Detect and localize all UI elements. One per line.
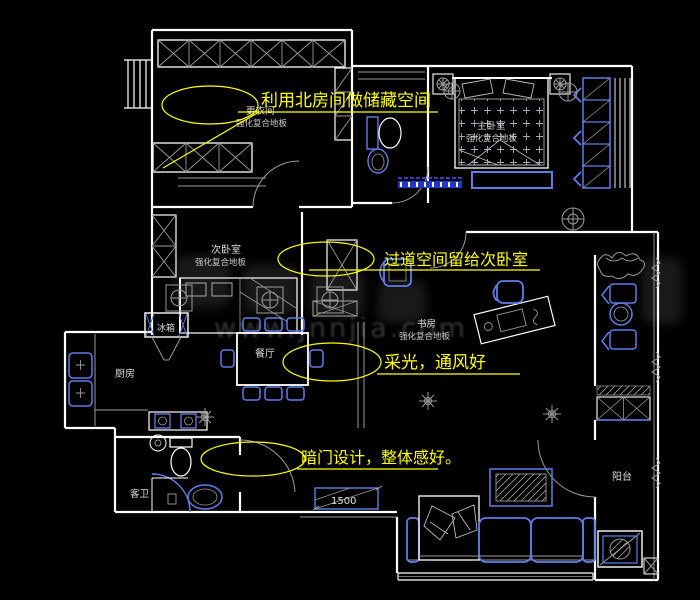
annotation-hidden-door-text: 暗门设计，整体感好。 bbox=[301, 448, 461, 467]
floorplan-drawing: www.jnnjia.com bbox=[0, 0, 700, 600]
study-chair bbox=[494, 281, 524, 303]
fridge-icon bbox=[145, 313, 188, 360]
sofa-pillows bbox=[424, 505, 477, 540]
bed-bench bbox=[472, 172, 552, 188]
toilet-icon bbox=[170, 438, 192, 476]
balcony-furniture bbox=[597, 252, 644, 567]
guest-bathroom bbox=[150, 435, 222, 512]
label-master-bedroom: 主卧室 bbox=[477, 120, 506, 132]
label-balcony: 阳台 bbox=[612, 470, 632, 483]
sink-icon bbox=[368, 149, 388, 173]
closet-top-row bbox=[158, 40, 345, 67]
label-guest-bath: 客卫 bbox=[130, 488, 150, 500]
balcony-table bbox=[610, 303, 632, 325]
kitchen-counter bbox=[95, 334, 148, 426]
shower-corner-icon bbox=[152, 474, 190, 512]
label-dining: 餐厅 bbox=[255, 347, 275, 360]
plant-icon bbox=[196, 392, 561, 426]
closet-second-bedroom bbox=[152, 215, 176, 277]
shower-icon bbox=[444, 83, 460, 99]
label-second-bedroom: 次卧室 bbox=[211, 243, 241, 256]
cabinet-corner-small bbox=[644, 558, 658, 574]
label-dimension: 1500 bbox=[331, 496, 356, 507]
cabinet-balcony bbox=[597, 386, 650, 420]
label-study-floor: 强化复合地板 bbox=[399, 331, 451, 342]
label-master-floor: 强化复合地板 bbox=[466, 133, 518, 144]
tv-cabinet bbox=[490, 469, 552, 506]
window-dressing-left bbox=[124, 60, 152, 108]
bathtub-icon bbox=[188, 485, 222, 509]
label-second-floor: 强化复合地板 bbox=[195, 257, 247, 268]
label-kitchen: 厨房 bbox=[115, 367, 135, 380]
closet-bottom-row bbox=[153, 143, 252, 172]
toilet-icon bbox=[367, 117, 401, 149]
plant-icon bbox=[597, 252, 644, 278]
kitchen-sink-icon bbox=[69, 353, 92, 406]
annotation-corridor-text: 过道空间留给次卧室 bbox=[384, 250, 528, 269]
annotation-daylight: 采光，通风好 bbox=[283, 343, 520, 381]
annotation-storage: 利用北房间做储藏空间 bbox=[162, 86, 438, 168]
stove-icon bbox=[149, 412, 207, 430]
door-threshold bbox=[398, 178, 462, 188]
label-study: 书房 bbox=[417, 318, 436, 330]
annotation-storage-text: 利用北房间做储藏空间 bbox=[261, 91, 431, 111]
label-fridge: 冰箱 bbox=[157, 322, 175, 334]
label-dressing-floor: 强化复合地板 bbox=[236, 118, 288, 129]
floorplan-canvas: www.jnnjia.com bbox=[0, 0, 700, 600]
wardrobe-master bbox=[574, 78, 630, 188]
annotation-daylight-text: 采光，通风好 bbox=[384, 353, 486, 373]
annotation-corridor: 过道空间留给次卧室 bbox=[278, 242, 540, 276]
